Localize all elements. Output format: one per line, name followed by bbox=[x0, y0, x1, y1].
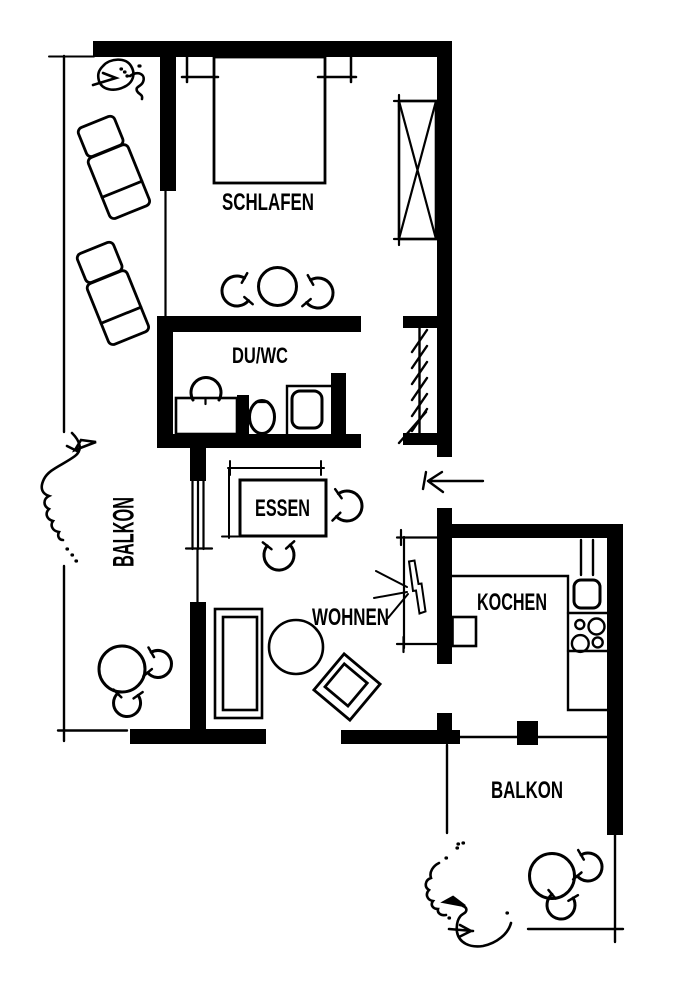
svg-text:BALKON: BALKON bbox=[491, 777, 563, 804]
svg-text:DU/WC: DU/WC bbox=[232, 343, 288, 368]
svg-text:WOHNEN: WOHNEN bbox=[312, 604, 389, 631]
svg-text:ESSEN: ESSEN bbox=[255, 495, 310, 522]
svg-text:SCHLAFEN: SCHLAFEN bbox=[222, 189, 314, 216]
svg-text:KOCHEN: KOCHEN bbox=[477, 589, 547, 616]
svg-text:BALKON: BALKON bbox=[108, 497, 141, 567]
